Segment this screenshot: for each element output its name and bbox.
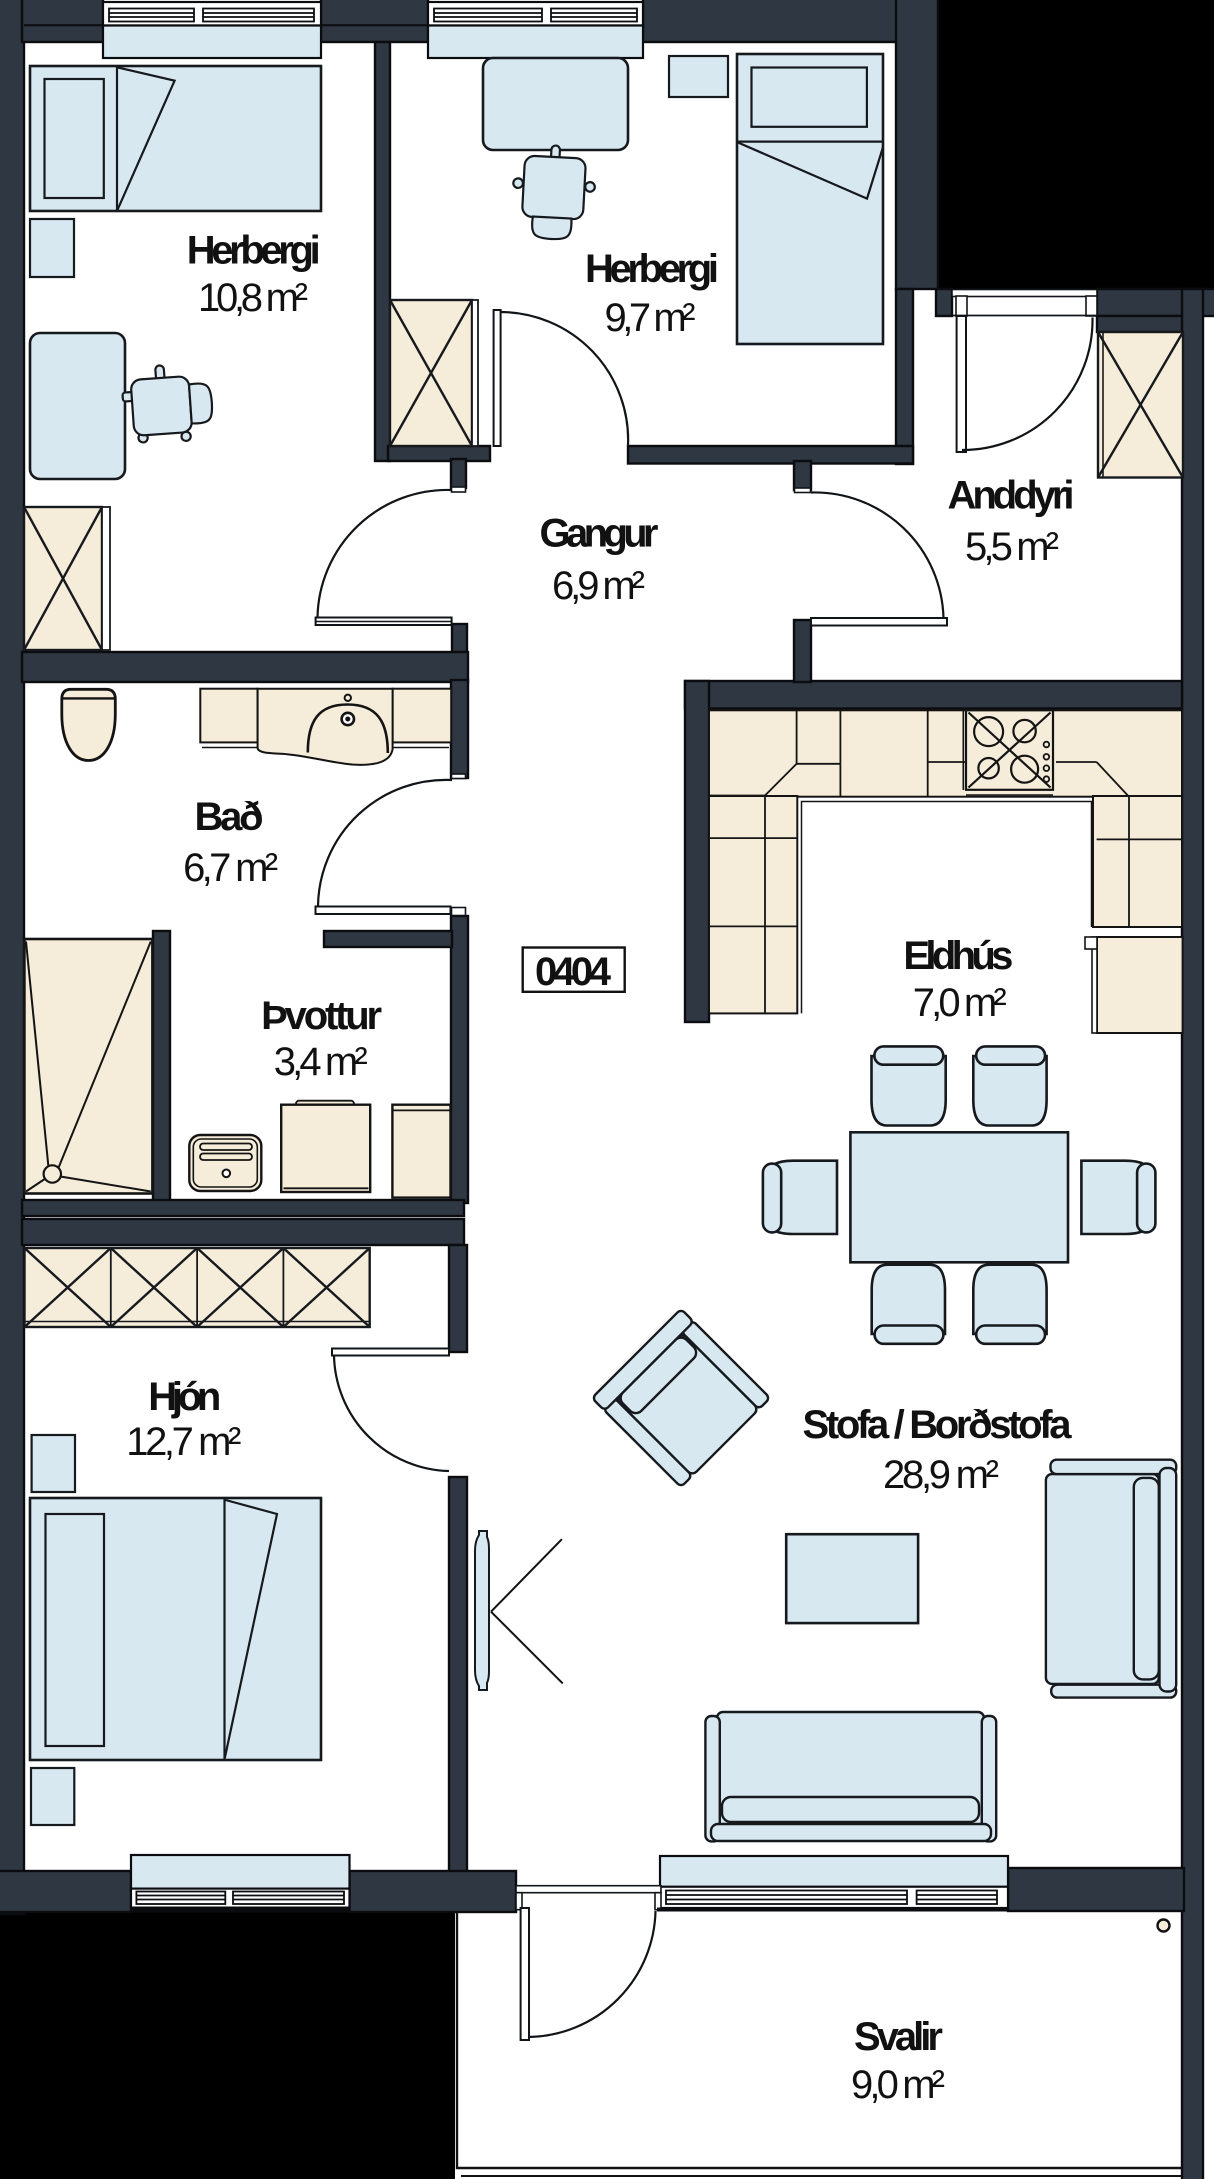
svg-text:9,0 m²: 9,0 m² [851,2063,945,2107]
svg-text:7,0 m²: 7,0 m² [913,981,1007,1025]
svg-text:6,7 m²: 6,7 m² [183,846,278,890]
svg-text:12,7 m²: 12,7 m² [126,1420,241,1464]
svg-text:9,7 m²: 9,7 m² [605,296,696,340]
svg-text:0404: 0404 [535,950,612,994]
svg-text:Þvottur: Þvottur [261,994,382,1038]
svg-text:Anddyri: Anddyri [948,473,1075,517]
svg-text:Stofa / Borðstofa: Stofa / Borðstofa [803,1403,1073,1447]
svg-text:Gangur: Gangur [540,512,659,556]
svg-text:Herbergi: Herbergi [585,247,719,291]
svg-text:Herbergi: Herbergi [187,229,321,273]
svg-text:Eldhús: Eldhús [903,934,1013,978]
svg-text:5,5 m²: 5,5 m² [965,525,1059,569]
svg-text:Svalir: Svalir [854,2015,943,2059]
svg-text:10,8 m²: 10,8 m² [198,276,308,320]
svg-text:Hjón: Hjón [148,1375,221,1419]
svg-text:28,9 m²: 28,9 m² [883,1453,999,1497]
svg-text:Bað: Bað [195,795,264,839]
svg-text:3,4 m²: 3,4 m² [274,1040,368,1084]
svg-text:6,9 m²: 6,9 m² [552,564,645,608]
